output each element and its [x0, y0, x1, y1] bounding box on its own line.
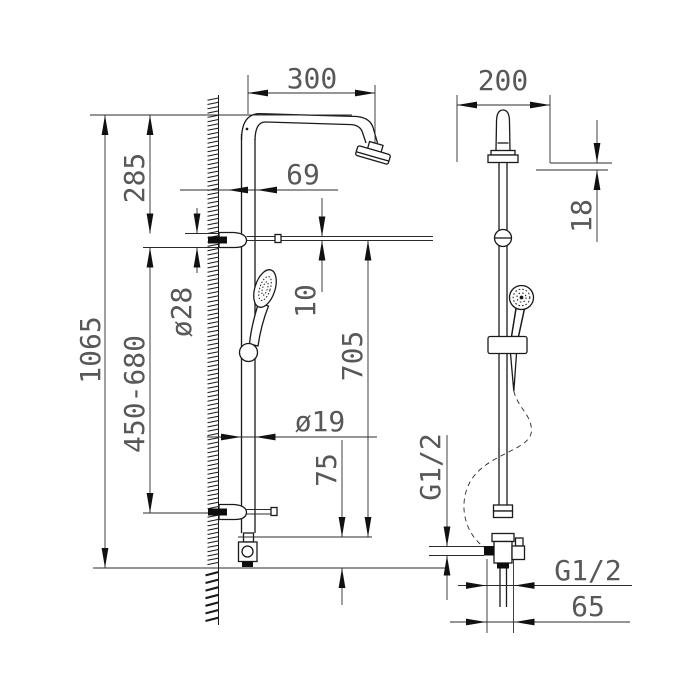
side-view [464, 110, 534, 607]
dim-upper-offset: 285 [118, 153, 151, 204]
dim-rail-range: 450-680 [118, 335, 151, 453]
technical-drawing-page: 300 69 285 1065 ø28 10 450-680 705 ø19 [0, 0, 699, 699]
side-bottom-valve [484, 505, 525, 607]
dim-wall-to-pipe: 69 [286, 158, 320, 191]
dim-outlet-height: 75 [310, 453, 343, 487]
dim-pipe-dia: ø19 [295, 405, 346, 438]
overhead-shower-head [355, 139, 392, 165]
dim-arm-projection: 300 [287, 62, 338, 95]
overhead-arm [242, 114, 378, 143]
hand-shower-head [249, 267, 280, 310]
dim-overall-height: 1065 [74, 316, 107, 383]
slider-ring [240, 344, 258, 362]
slider-bracket [488, 337, 527, 354]
hand-shower-front [240, 267, 281, 362]
rail-clamp-upper [275, 235, 281, 243]
dim-bracket-gap: 10 [289, 284, 322, 318]
dim-escutcheon-dia: ø28 [165, 287, 198, 338]
dim-mid-height: 705 [336, 331, 369, 382]
shower-column-drawing: 300 69 285 1065 ø28 10 450-680 705 ø19 [0, 0, 699, 699]
dim-side-width: 200 [478, 64, 529, 97]
rail-clamp-lower [271, 508, 277, 516]
wall-hatching-fine [208, 98, 219, 565]
dim-outlet-thread: G1/2 [554, 554, 621, 587]
upper-bracket-anchor [208, 237, 227, 244]
valve-handle [242, 546, 253, 557]
hand-shower-handle [250, 303, 269, 346]
side-column-pipe [495, 163, 512, 506]
wall-section [206, 95, 219, 625]
dim-head-thickness: 18 [565, 199, 598, 233]
dim-outlet-offset: 65 [571, 590, 605, 623]
bottom-valve-front [239, 533, 258, 567]
wall-hatching-coarse [206, 572, 219, 621]
inlet-port [484, 546, 495, 556]
lower-bracket-anchor [208, 509, 227, 516]
shower-hose [464, 391, 532, 549]
side-head-shower [488, 110, 518, 163]
dim-inlet-thread: G1/2 [414, 433, 447, 500]
upper-wall-bracket [208, 233, 433, 248]
